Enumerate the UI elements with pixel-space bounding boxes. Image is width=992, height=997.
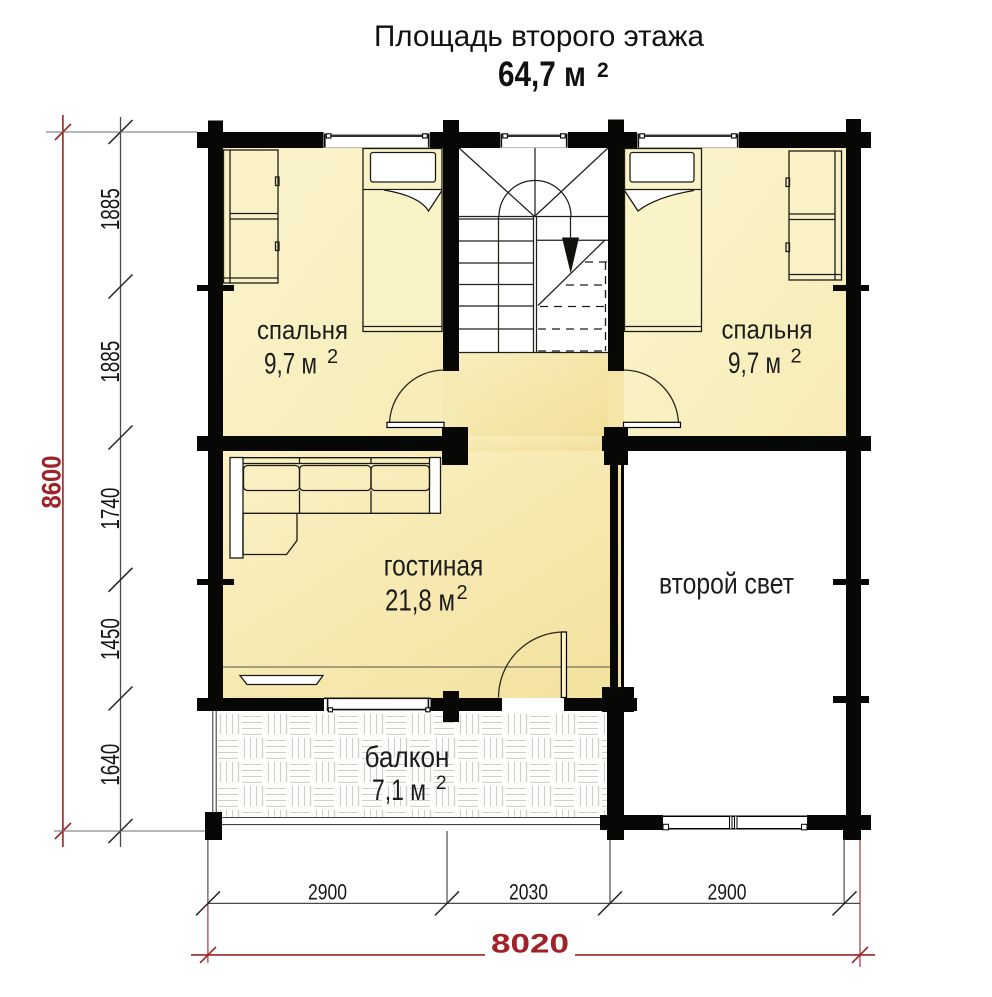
svg-text:2: 2 — [457, 582, 468, 604]
svg-text:7,1 м: 7,1 м — [372, 774, 426, 807]
svg-text:64,7 м: 64,7 м — [498, 55, 586, 94]
svg-text:2900: 2900 — [308, 880, 347, 905]
svg-text:2: 2 — [436, 773, 447, 794]
svg-text:8020: 8020 — [491, 929, 569, 959]
svg-text:1740: 1740 — [95, 488, 125, 530]
svg-text:9,7 м: 9,7 м — [264, 347, 317, 380]
svg-text:8600: 8600 — [37, 456, 67, 509]
svg-text:2: 2 — [791, 346, 802, 368]
svg-text:1640: 1640 — [95, 744, 125, 786]
svg-text:2900: 2900 — [708, 880, 747, 905]
svg-text:2: 2 — [597, 59, 609, 82]
svg-text:1885: 1885 — [95, 341, 125, 383]
svg-text:1450: 1450 — [95, 618, 125, 660]
svg-text:1885: 1885 — [95, 188, 125, 230]
svg-text:спальня: спальня — [257, 315, 348, 345]
svg-text:21,8 м: 21,8 м — [385, 583, 455, 618]
svg-text:спальня: спальня — [722, 315, 813, 345]
svg-text:Площадь второго этажа: Площадь второго этажа — [374, 20, 704, 53]
svg-text:второй свет: второй свет — [659, 568, 794, 601]
svg-text:2030: 2030 — [509, 880, 548, 905]
svg-text:9,7 м: 9,7 м — [728, 347, 781, 380]
svg-text:2: 2 — [327, 346, 338, 368]
svg-text:гостиная: гостиная — [384, 549, 484, 582]
svg-text:балкон: балкон — [365, 741, 450, 774]
